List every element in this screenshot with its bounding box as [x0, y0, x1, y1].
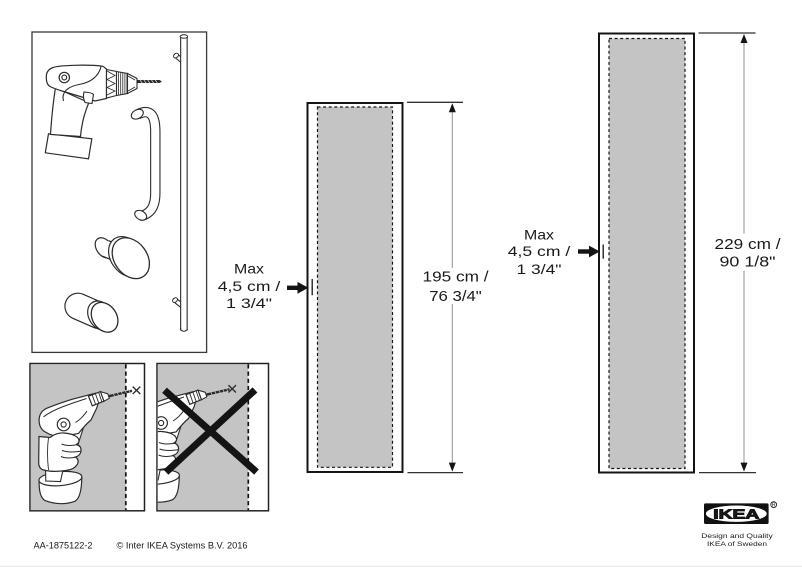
svg-text:Max: Max — [524, 227, 554, 243]
svg-text:195 cm /: 195 cm / — [423, 270, 490, 286]
svg-text:IKEA of Sweden: IKEA of Sweden — [707, 541, 767, 548]
svg-text:AA-1875122-2: AA-1875122-2 — [34, 541, 93, 551]
svg-text:229 cm /: 229 cm / — [715, 237, 782, 253]
svg-text:Max: Max — [234, 261, 264, 277]
svg-text:R: R — [772, 503, 776, 509]
svg-text:4,5 cm /: 4,5 cm / — [508, 243, 571, 259]
svg-text:90 1/8": 90 1/8" — [720, 254, 776, 270]
svg-text:1 3/4": 1 3/4" — [226, 295, 272, 311]
svg-text:1 3/4": 1 3/4" — [517, 261, 562, 277]
svg-text:IKEA: IKEA — [713, 506, 760, 521]
svg-text:4,5 cm /: 4,5 cm / — [218, 278, 281, 294]
svg-text:Design and Quality: Design and Quality — [701, 533, 773, 540]
svg-text:© Inter IKEA Systems B.V. 2016: © Inter IKEA Systems B.V. 2016 — [117, 541, 248, 551]
svg-text:76 3/4": 76 3/4" — [429, 289, 482, 305]
